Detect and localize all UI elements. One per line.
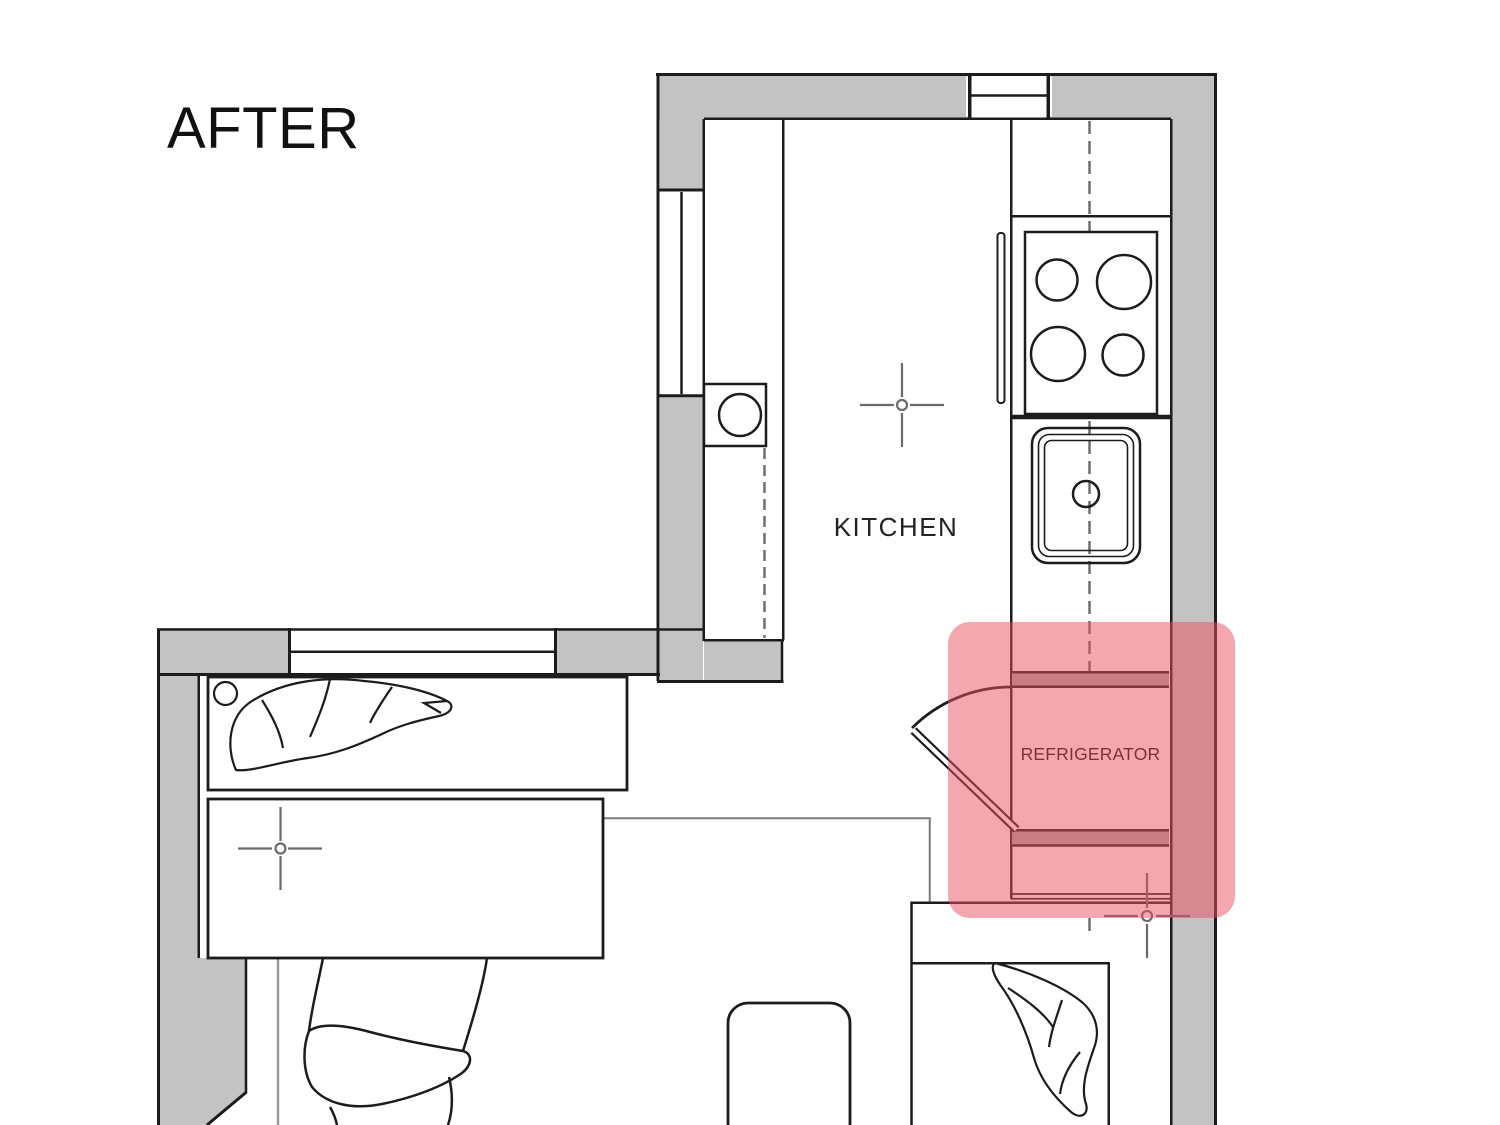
pillow2-feather	[993, 963, 1097, 1116]
sink-basin	[1045, 441, 1128, 551]
kitchen-left-wall-upper	[660, 73, 703, 189]
lower-left-wall-jamb	[200, 958, 247, 1125]
top-wall-left	[657, 73, 968, 120]
bed-1	[208, 677, 627, 1125]
bed1-headboard	[208, 677, 627, 790]
floor-plan-drawing	[0, 0, 1500, 1125]
kitchen-left-wall-lower	[660, 397, 703, 683]
bedroom-left-wall	[157, 628, 200, 1125]
sink-middle	[1039, 435, 1134, 557]
refrigerator-highlight-overlay	[948, 622, 1235, 918]
floor-plan-canvas: AFTER KITCHEN REFRIGERATOR	[0, 0, 1500, 1125]
top-wall-right	[1050, 73, 1217, 120]
stove-filler-panel	[998, 233, 1005, 403]
bedroom-top-wall-right	[556, 628, 660, 676]
room-boundary-thin-line	[603, 818, 930, 902]
kitchen-bottom-wall	[704, 641, 783, 683]
kitchen-label: KITCHEN	[830, 514, 962, 540]
kitchen-center-mark	[860, 363, 944, 447]
table	[728, 1003, 850, 1125]
plan-title: AFTER	[167, 100, 360, 158]
bed1-body	[208, 799, 603, 958]
appliance-box	[704, 384, 766, 446]
kitchen-counter-left	[704, 120, 783, 640]
blanket	[304, 958, 487, 1125]
sink-drain	[1073, 481, 1099, 507]
sink-outer	[1032, 428, 1140, 563]
